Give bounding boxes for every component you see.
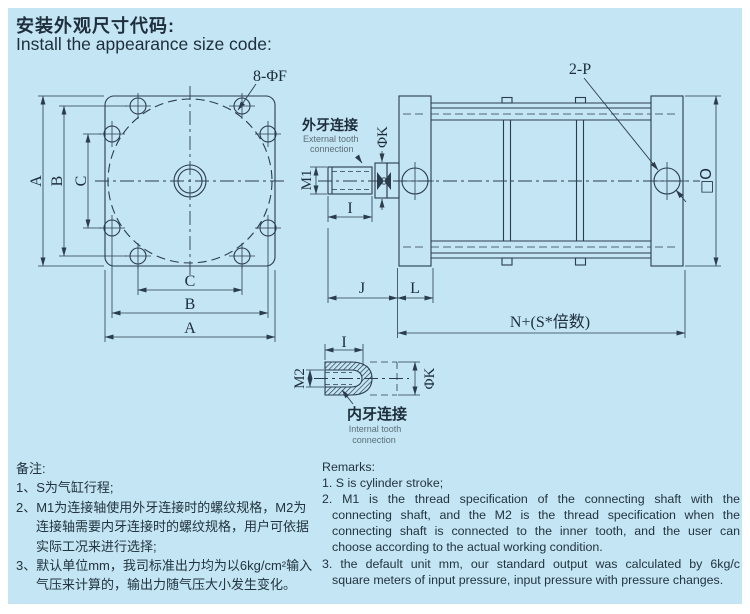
j-label: J (359, 280, 365, 297)
remarks-en-line: 2. M1 is the thread specification of the… (322, 491, 740, 507)
dim-b-left: B (49, 176, 66, 187)
phik-top-label: ΦK (375, 126, 391, 148)
remarks-en: Remarks: 1. S is cylinder stroke; 2. M1 … (322, 459, 740, 588)
port-left (396, 162, 434, 200)
detail-i-label: I (341, 334, 346, 351)
remarks-en-line: connecting shaft, and the M2 is the thre… (322, 507, 740, 523)
dim-a-left: A (28, 175, 45, 187)
remarks-zh: 备注: 1、S为气缸行程; 2、M1为连接轴使用外牙连接时的螺纹规格，M2为 连… (16, 459, 330, 595)
detail-phik-label: ΦK (422, 367, 438, 389)
remarks-zh-line: 连接轴需要内牙连接时的螺纹规格，用户可依据 (16, 517, 330, 536)
remarks-zh-line: 气压来计算的，输出力随气压大小发生变化。 (16, 575, 330, 594)
remarks-en-line: choose according to the actual working c… (322, 539, 740, 555)
cap-hidden-lines (403, 114, 679, 247)
external-tooth-label-en1: External tooth (303, 134, 359, 144)
page: 安装外观尺寸代码: Install the appearance size co… (0, 0, 750, 614)
internal-connector-detail (306, 344, 420, 404)
external-tooth-leader (357, 156, 362, 163)
internal-tooth-label-en1: Internal tooth (349, 424, 402, 434)
dim-c-bottom: C (185, 273, 196, 290)
tube-sections (504, 120, 584, 241)
port-right (648, 162, 686, 200)
dim-a-bottom: A (184, 320, 196, 337)
remarks-zh-line: 1、S为气缸行程; (16, 478, 330, 497)
n-label: N+(S*倍数) (510, 313, 590, 331)
remarks-en-line: 1. S is cylinder stroke; (322, 475, 740, 491)
remarks-zh-header: 备注: (16, 459, 330, 478)
m1-label: M1 (299, 170, 315, 191)
centerlines (95, 86, 285, 276)
external-tooth-label-en2: connection (310, 144, 354, 154)
internal-tooth-label-en2: connection (352, 435, 396, 445)
rod-external-thread (328, 163, 399, 198)
port-callout-label: 2-P (569, 61, 591, 78)
port-callout-leader (584, 78, 686, 202)
tie-rods-top (431, 98, 651, 121)
hole-callout-label: 8-ΦF (253, 68, 287, 85)
m2-label: M2 (292, 368, 308, 389)
remarks-en-header: Remarks: (322, 459, 740, 475)
side-view (310, 78, 721, 338)
l-label: L (410, 280, 420, 297)
internal-tooth-label-zh: 内牙连接 (347, 405, 407, 423)
remarks-en-line: square meters of input pressure, input p… (322, 572, 740, 588)
remarks-zh-line: 实际工况来进行选择; (16, 537, 330, 556)
i-label: I (347, 200, 352, 217)
tie-rods-bottom (431, 241, 651, 265)
front-view (38, 84, 285, 342)
dim-b-bottom: B (185, 296, 196, 313)
remarks-en-line: connecting shaft is connected to the inn… (322, 523, 740, 539)
external-tooth-label-zh: 外牙连接 (302, 117, 358, 134)
remarks-zh-line: 2、M1为连接轴使用外牙连接时的螺纹规格，M2为 (16, 498, 330, 517)
square-o-label: □O (697, 168, 715, 194)
remarks-en-line: 3. the default unit mm, our standard out… (322, 556, 740, 572)
remarks-zh-line: 3、默认单位mm，我司标准出力均为以6kg/cm²输入 (16, 556, 330, 575)
dim-c-left: C (73, 176, 90, 187)
